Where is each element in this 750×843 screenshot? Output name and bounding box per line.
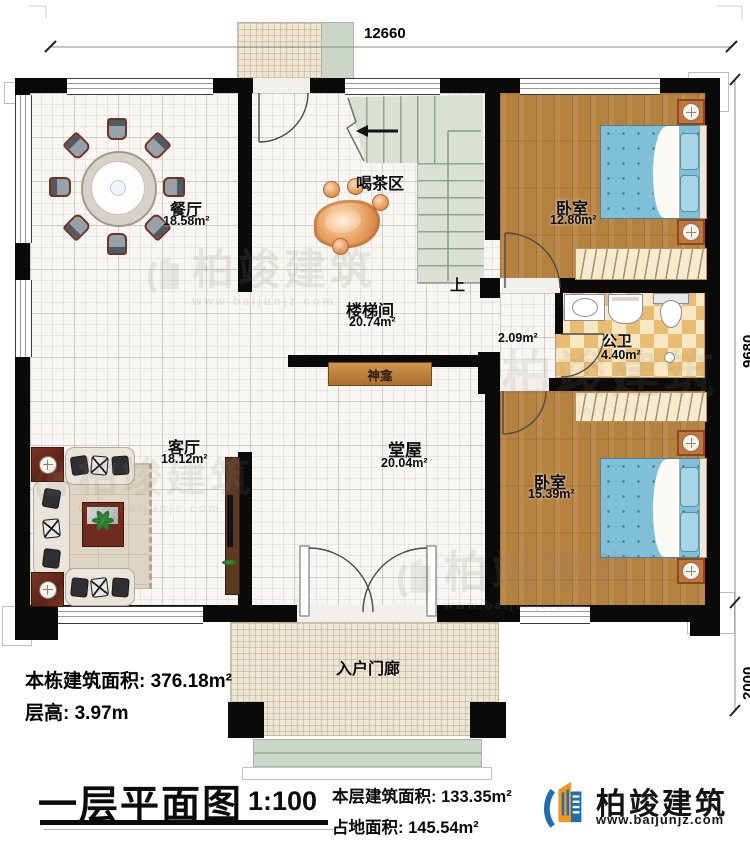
wall-bath-bottom	[549, 378, 705, 391]
wall-pier	[478, 352, 500, 394]
bathroom-counter	[564, 294, 605, 321]
wall-bedroom-left	[485, 394, 500, 605]
window	[15, 95, 32, 243]
porch-column	[228, 702, 264, 738]
room-area-living: 18.12m²	[161, 452, 208, 466]
shower-unit	[608, 294, 643, 324]
wall-corner	[15, 605, 58, 640]
entry-porch	[230, 622, 499, 736]
brand-url: www.baijunjz.com	[596, 812, 724, 827]
lamp-icon	[39, 456, 57, 474]
window	[520, 606, 590, 624]
coffee-table	[82, 502, 124, 547]
wall-dining-tea	[238, 93, 252, 292]
building-area-text: 本栋建筑面积: 376.18m²	[25, 666, 232, 693]
room-area-bedroom-top: 12.80m²	[550, 213, 597, 227]
wall-living-hall	[238, 452, 252, 605]
dining-chair	[49, 177, 71, 197]
bed-duvet-fold	[652, 459, 679, 557]
wall-pier	[480, 278, 500, 298]
tea-stool	[323, 181, 340, 198]
lamp-icon	[682, 562, 700, 580]
bed	[600, 125, 702, 219]
dining-chair	[163, 177, 185, 197]
dimension-right-label: 9680	[740, 335, 750, 368]
sofa-bottom	[65, 568, 135, 606]
tea-stool	[332, 238, 349, 255]
entry-opening	[297, 605, 437, 622]
nightstand	[677, 558, 705, 584]
dining-chair	[107, 233, 127, 255]
dimension-porch-label: 2000	[740, 667, 750, 700]
porch-step-edge	[242, 767, 492, 780]
tea-stool	[372, 194, 389, 211]
wall-bedroom-left	[485, 93, 500, 240]
room-area-bathroom: 4.40m²	[601, 348, 641, 362]
brand-logo-icon	[544, 776, 590, 830]
wardrobe	[575, 248, 707, 280]
window	[67, 78, 213, 95]
wall	[705, 78, 720, 622]
nightstand	[677, 430, 705, 456]
room-area-bedroom-bottom: 15.39m²	[528, 487, 575, 501]
drawing-scale: 1:100	[248, 786, 317, 817]
pillow	[680, 467, 699, 507]
floor-drain	[664, 352, 675, 363]
porch-column	[470, 702, 506, 738]
room-label-porch: 入户门廊	[336, 655, 400, 679]
wall-bath-left	[555, 293, 563, 334]
floor-plan: 神龛	[0, 0, 750, 843]
floor-height-text: 层高: 3.97m	[25, 698, 128, 725]
room-area-hallway: 2.09m²	[498, 331, 538, 345]
stair-treads	[366, 95, 448, 163]
window	[345, 78, 440, 95]
nightstand	[677, 99, 705, 125]
title-underline-thin	[44, 829, 336, 830]
lazy-susan	[110, 180, 126, 196]
dining-chair	[107, 118, 127, 140]
shrine-label: 神龛	[367, 365, 392, 384]
bed	[600, 458, 702, 558]
window	[520, 78, 660, 95]
window	[58, 606, 203, 624]
side-table	[31, 447, 64, 482]
plant-icon	[222, 560, 236, 565]
wall-bedroom1-bottom	[560, 278, 705, 293]
pillow	[680, 175, 699, 212]
bed-duvet-fold	[652, 126, 679, 218]
tv-icon	[227, 495, 233, 547]
lamp-icon	[682, 434, 700, 452]
dining-table	[81, 151, 157, 227]
lamp-icon	[682, 103, 700, 121]
floor-area-text: 本层建筑面积: 133.35m²	[332, 783, 512, 807]
lamp-icon	[682, 223, 700, 241]
porch-step	[253, 739, 482, 753]
room-area-hall: 20.04m²	[381, 456, 428, 470]
rear-porch	[237, 22, 323, 80]
room-label-tea: 喝茶区	[356, 170, 404, 194]
rear-porch-steps	[321, 22, 354, 80]
sink	[572, 298, 598, 317]
stair-treads	[418, 163, 484, 283]
dimension-top-label: 12660	[364, 25, 406, 42]
shower-control	[612, 297, 639, 301]
stair-lower-flight	[417, 163, 484, 284]
wall-corner	[690, 605, 720, 636]
shrine-cabinet: 神龛	[328, 362, 432, 386]
nightstand	[677, 219, 705, 245]
door-opening	[500, 378, 549, 391]
side-table	[31, 572, 64, 607]
headboard	[699, 458, 707, 558]
title-underline	[40, 820, 328, 825]
headboard	[699, 125, 707, 219]
door-opening	[502, 278, 560, 293]
pillow	[680, 512, 699, 552]
stair-up-label: 上	[450, 274, 465, 295]
lamp-icon	[39, 581, 57, 599]
pillow	[680, 133, 699, 170]
wardrobe	[575, 392, 707, 422]
land-area-text: 占地面积: 145.54m²	[332, 814, 479, 838]
room-area-stairwell: 20.74m²	[349, 315, 396, 329]
stair-upper-flight	[348, 95, 483, 164]
door-opening	[253, 78, 310, 93]
porch-step	[253, 753, 482, 767]
sofa-top	[65, 447, 135, 485]
room-area-dining: 18.58m²	[163, 214, 210, 228]
window	[15, 280, 32, 357]
sofa-left	[33, 480, 70, 576]
